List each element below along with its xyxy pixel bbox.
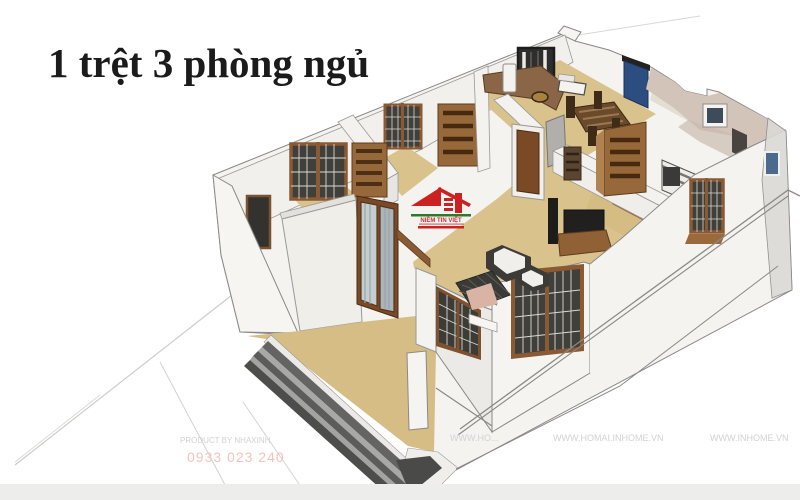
svg-text:NIỀM TIN VIỆT: NIỀM TIN VIỆT xyxy=(420,216,462,224)
svg-text:WWW.INHOME.VN: WWW.INHOME.VN xyxy=(710,433,789,443)
svg-text:PRODUCT BY NHAXINH: PRODUCT BY NHAXINH xyxy=(180,436,271,445)
svg-text:0933 023 240: 0933 023 240 xyxy=(187,449,285,465)
svg-text:1 trệt 3 phòng ngủ: 1 trệt 3 phòng ngủ xyxy=(48,40,369,86)
svg-text:WWW.HOMAI.INHOME.VN: WWW.HOMAI.INHOME.VN xyxy=(553,433,664,443)
svg-text:WWW.HO...: WWW.HO... xyxy=(450,433,499,443)
